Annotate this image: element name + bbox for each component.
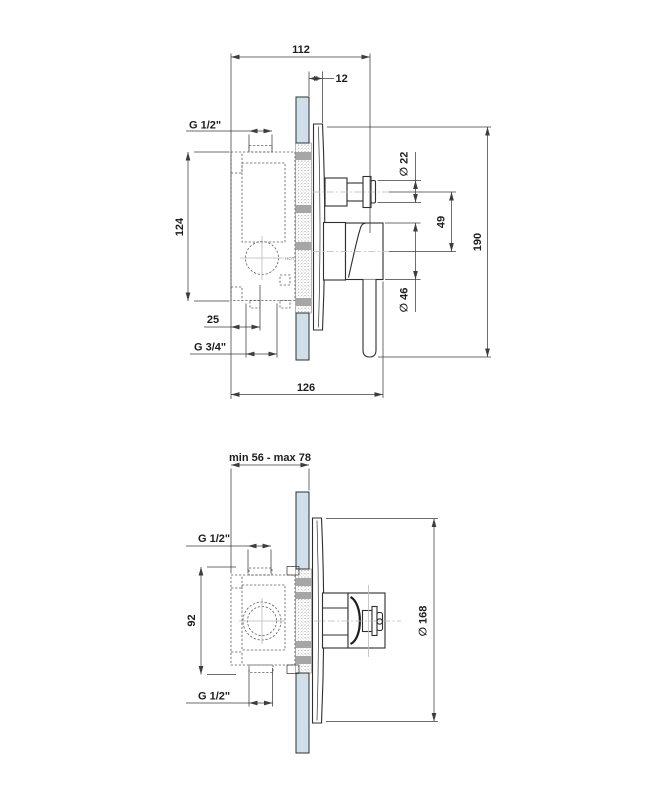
- dim-49: 49: [389, 192, 456, 252]
- dim-49-label: 49: [436, 216, 448, 228]
- outlet-stub-top: [249, 568, 272, 575]
- outlet-stub-bottom: [249, 665, 273, 673]
- dim-92-label: 92: [186, 614, 198, 626]
- pipe-band: [296, 592, 312, 599]
- pipe-band: [296, 152, 312, 160]
- dim-12: 12: [309, 72, 348, 124]
- valve-step-top: [231, 152, 242, 173]
- dim-25-label: 25: [207, 314, 219, 326]
- thread-g12-lower-label: G 1/2": [198, 691, 230, 703]
- dim-recess-range-label: min 56 - max 78: [229, 452, 311, 464]
- drawing-canvas: HOT 112: [0, 0, 668, 800]
- dim-126-label: 126: [297, 382, 315, 394]
- dim-handle-diameter: ∅ 46: [385, 223, 421, 312]
- wall-tile-top: [296, 97, 309, 143]
- concealed-valve-hidden: HOT: [231, 146, 295, 309]
- dim-124-label: 124: [174, 217, 186, 236]
- pipe-band: [296, 641, 312, 648]
- lever-rod: [363, 280, 376, 358]
- pipe-band: [296, 656, 312, 664]
- dimensions-top-view: 112 12 G 1/2" 124: [174, 44, 491, 399]
- dim-knob-diameter-label: ∅ 22: [399, 152, 411, 177]
- valve-step-bottom: [231, 287, 242, 301]
- dim-g12-upper: G 1/2": [186, 533, 271, 574]
- dim-124: 124: [174, 152, 230, 301]
- dim-g34: G 3/4": [190, 304, 277, 358]
- dim-plate-diameter-label: ∅ 168: [418, 606, 430, 637]
- pipe-band: [296, 578, 312, 586]
- dim-g12-top: G 1/2": [186, 120, 272, 152]
- dim-plate-offset-label: 12: [336, 73, 348, 85]
- thread-g12-upper-label: G 1/2": [198, 533, 230, 545]
- plaster-layer: [296, 143, 312, 313]
- thread-g34-label: G 3/4": [194, 342, 226, 354]
- outlet-stub-top: [249, 146, 272, 153]
- pipe-band: [296, 242, 312, 250]
- dim-g12-lower: G 1/2": [186, 668, 273, 707]
- mixer-lever: [324, 223, 384, 358]
- hot-marker-label: HOT: [285, 256, 295, 261]
- dim-handle-diameter-label: ∅ 46: [399, 288, 411, 313]
- inlet-stub-right: [280, 301, 290, 309]
- pipe-band: [296, 298, 312, 306]
- thread-g12-top-label: G 1/2": [189, 120, 221, 132]
- dim-knob-diameter: ∅ 22: [378, 152, 422, 203]
- wall-section: [296, 492, 312, 753]
- lever-cap: [377, 613, 383, 631]
- wall-section: [296, 97, 312, 360]
- technical-drawing-svg: HOT 112: [0, 0, 668, 800]
- dim-112-label: 112: [292, 44, 310, 56]
- lever-base: [323, 593, 349, 648]
- inlet-stub-left: [250, 301, 260, 309]
- pipe-band: [296, 205, 312, 213]
- mixer-lever-front: [314, 585, 401, 657]
- valve-inner-block: [242, 163, 285, 242]
- wall-tile-top: [296, 492, 309, 569]
- dim-92: 92: [186, 567, 236, 675]
- valve-step-top: [231, 575, 242, 588]
- top-view: HOT 112: [174, 44, 491, 399]
- dim-190-label: 190: [472, 233, 484, 251]
- wall-tile-bottom: [296, 313, 309, 360]
- wall-tile-bottom: [296, 673, 309, 753]
- valve-step-bottom: [231, 652, 242, 665]
- side-tab: [280, 275, 290, 285]
- concealed-valve-hidden: [231, 567, 299, 674]
- bottom-view: min 56 - max 78 G 1/2" 92 G 1/2": [186, 452, 438, 753]
